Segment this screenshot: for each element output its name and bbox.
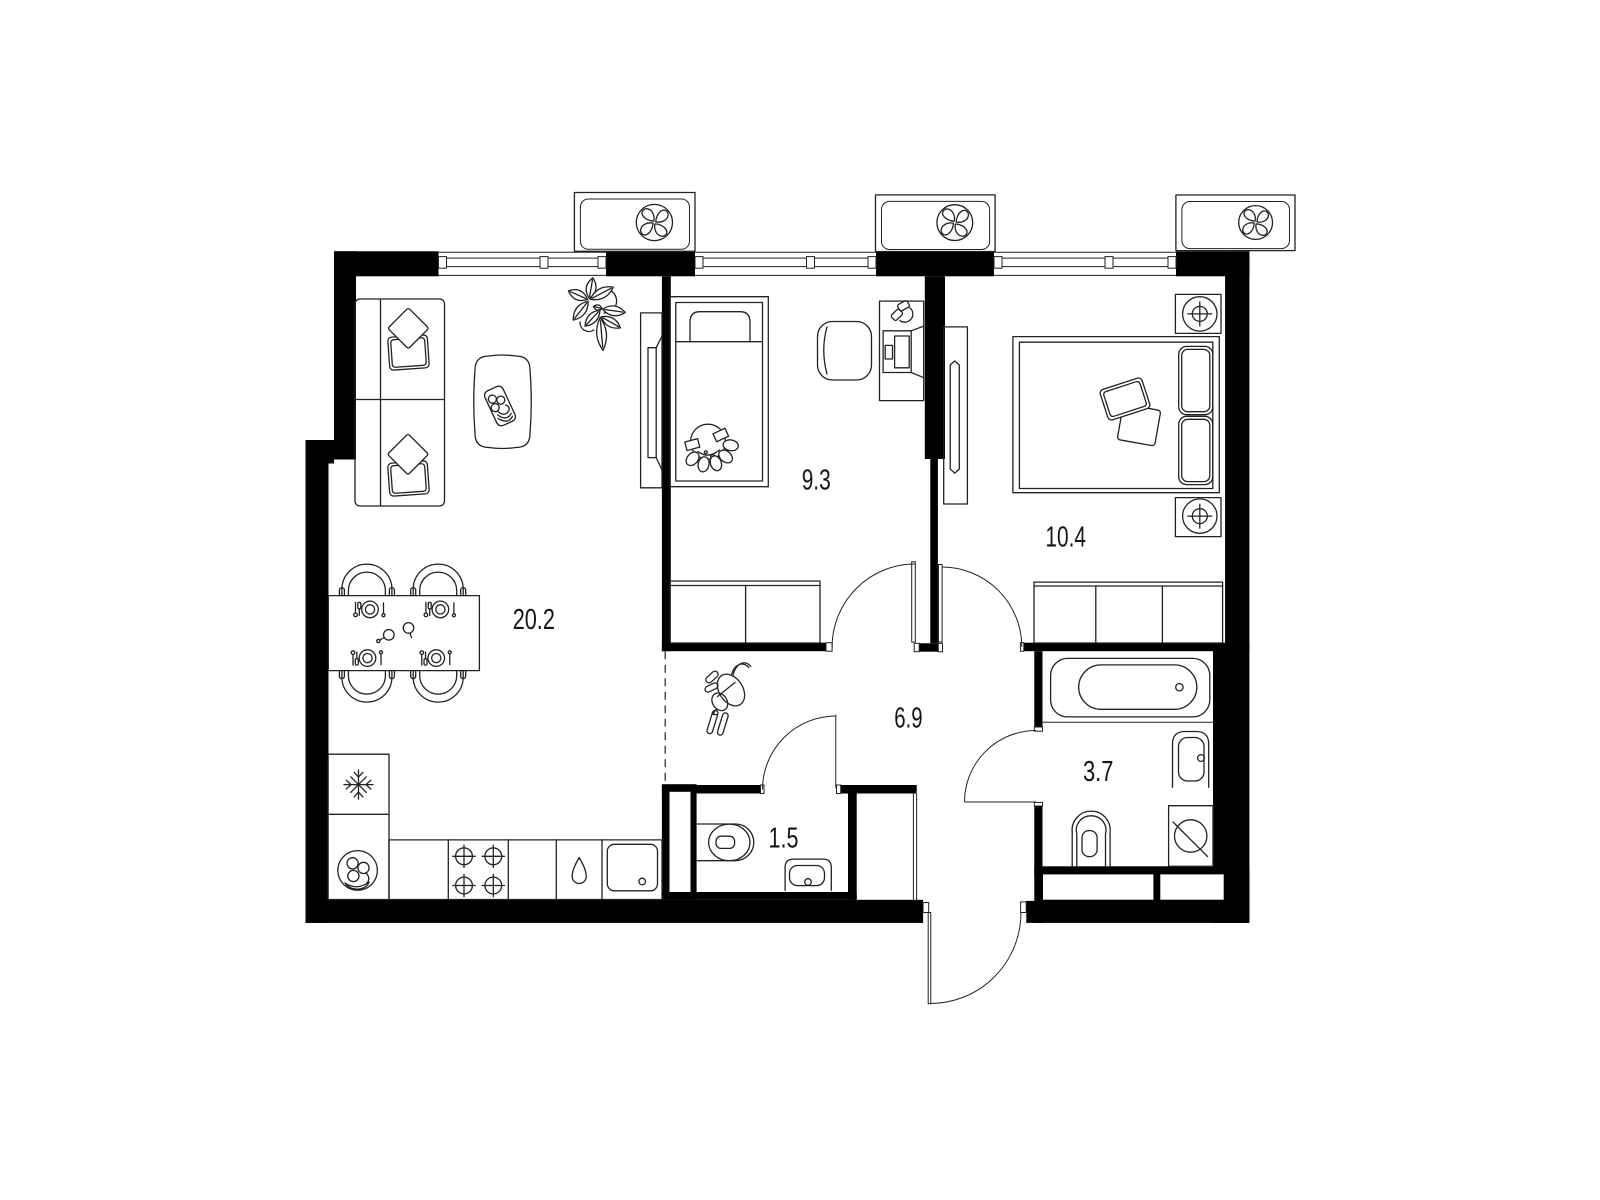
svg-text:20.2: 20.2 <box>513 604 555 636</box>
svg-text:1.5: 1.5 <box>769 822 799 854</box>
svg-text:6.9: 6.9 <box>894 703 922 735</box>
svg-text:3.7: 3.7 <box>1083 756 1114 788</box>
svg-text:9.3: 9.3 <box>802 464 831 496</box>
svg-text:10.4: 10.4 <box>1045 521 1086 553</box>
